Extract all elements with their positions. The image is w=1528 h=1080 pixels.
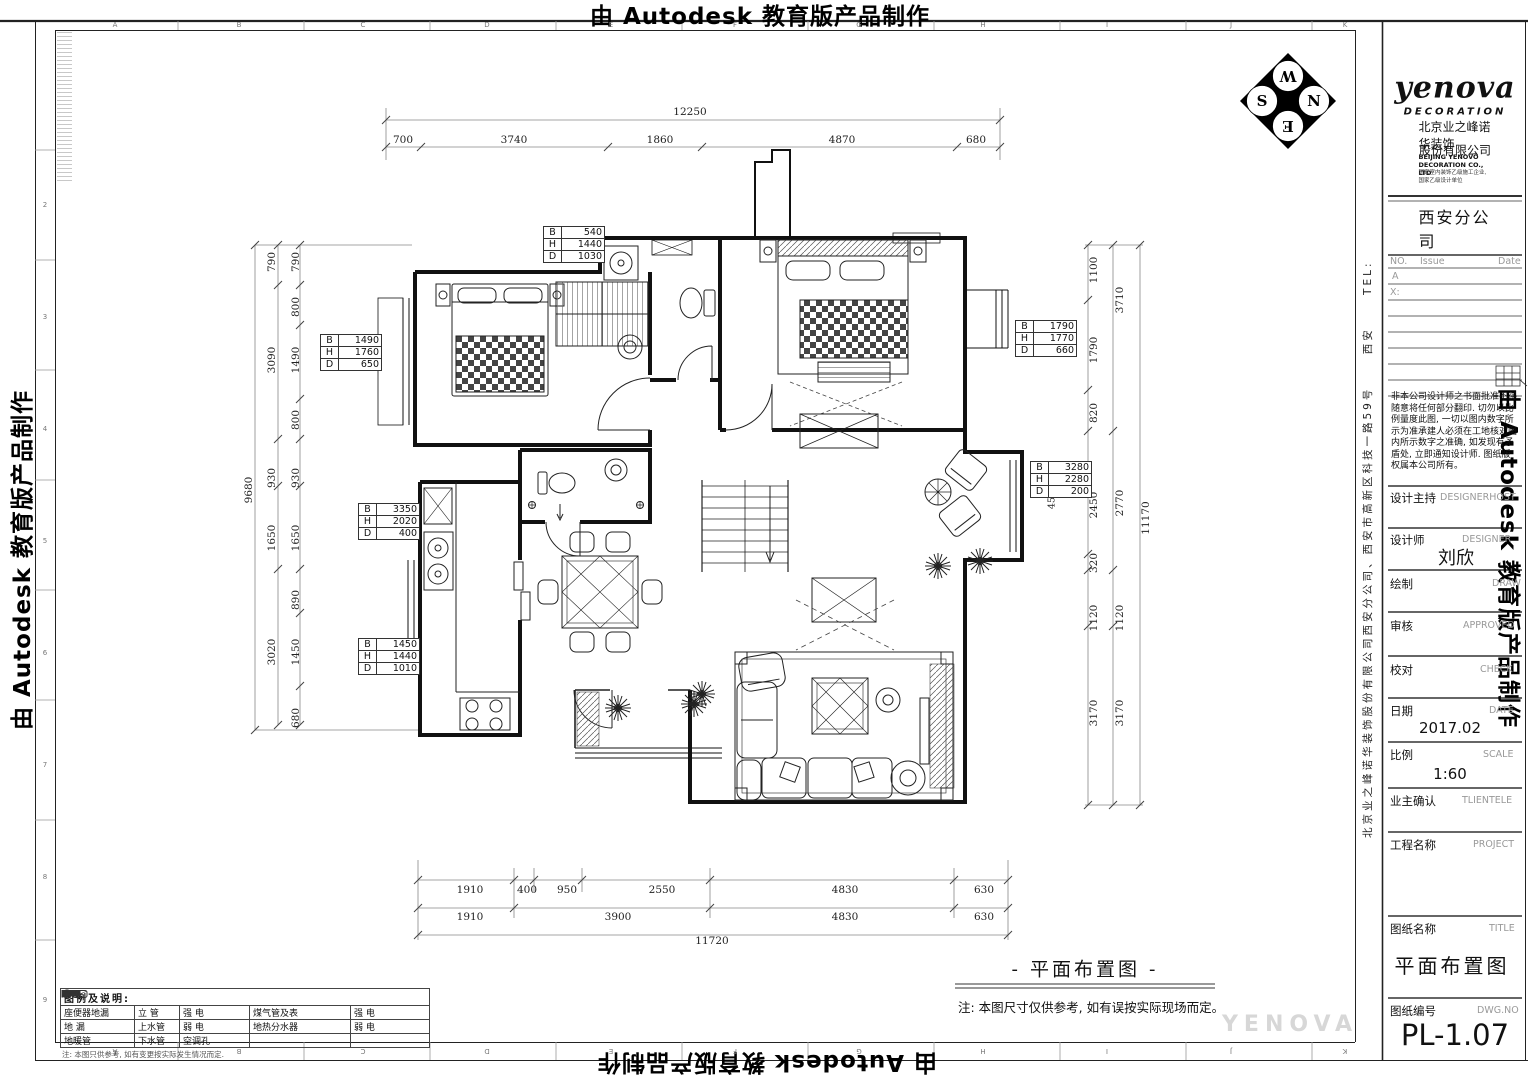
grid-ref: 7	[43, 761, 47, 769]
master-bed	[760, 240, 926, 382]
dim-label: 1120	[1114, 605, 1126, 632]
grid-ref: A	[113, 21, 118, 29]
legend-cell: 立 管	[135, 1006, 180, 1020]
legend-cell: 煤气管及表	[250, 1006, 351, 1020]
field-label: 图纸编号	[1390, 1003, 1436, 1019]
legend-cell: 强 电	[351, 1006, 430, 1020]
hall-ceiling-dashed	[796, 600, 894, 650]
legend-note: 注: 本图只供参考, 如有变更按实际发生情况而定.	[62, 1049, 224, 1060]
kitchen	[424, 482, 520, 730]
legend-cell: 座便器地漏	[61, 1006, 135, 1020]
dim-label: 3090	[266, 347, 278, 374]
legend-cell: 空调孔	[180, 1034, 250, 1048]
dim-left-overall: 9680	[243, 477, 255, 504]
dim-label: 4830	[832, 884, 859, 896]
edu-stamp-left: 由 Autodesk 教育版产品制作	[3, 390, 37, 730]
dim-label: 930	[290, 468, 302, 488]
grid-ref: F	[733, 21, 737, 29]
table-grid-icon	[1496, 366, 1527, 386]
dim-top-overall: 12250	[673, 106, 706, 118]
grid-ref: 3	[43, 313, 47, 321]
yenova-watermark: YENOVA	[1222, 1012, 1358, 1037]
designer-name: 刘欣	[1438, 544, 1474, 570]
field-label: 比例	[1390, 747, 1413, 763]
legend-cell: 上水管	[135, 1020, 180, 1034]
legend-title: 图例及说明:	[61, 989, 430, 1006]
dim-label: 680	[290, 708, 302, 728]
field-en: SCALE	[1483, 749, 1513, 760]
grid-ref: C	[361, 21, 366, 29]
grid-ref: C	[361, 1047, 366, 1055]
compass-west: W	[1278, 67, 1297, 85]
brand-certs: 国家室内装饰乙级施工企业, 国家乙级设计单位	[1419, 168, 1492, 184]
issue-row-x: X:	[1390, 287, 1400, 298]
field-label: 图纸名称	[1390, 921, 1436, 937]
grid-ref: E	[609, 21, 613, 29]
dim-label: 320	[1088, 553, 1100, 573]
issue-label: Issue	[1420, 256, 1445, 267]
grid-ref: D	[484, 21, 489, 29]
legend-cell: 地 漏	[61, 1020, 135, 1034]
dim-right-overall: 11170	[1140, 501, 1152, 534]
grid-ref: I	[1106, 21, 1108, 29]
grid-ref: H	[980, 21, 985, 29]
ac-hole-icon	[61, 989, 81, 997]
grid-ref: 8	[43, 873, 47, 881]
dim-label: 790	[266, 252, 278, 272]
master-ceiling-dashed	[790, 382, 902, 426]
dim-label: 1910	[457, 884, 484, 896]
dim-label: 3710	[1114, 287, 1126, 314]
compass-north: N	[1307, 92, 1321, 110]
grid-ref: G	[856, 1047, 861, 1055]
dim-bottom-overall: 11720	[695, 935, 728, 947]
dim-label: 680	[966, 134, 986, 146]
grid-ref: 5	[43, 537, 47, 545]
dim-label: 630	[974, 884, 994, 896]
issue-no: NO.	[1390, 256, 1407, 267]
legend-cell: 地热分水器	[250, 1020, 351, 1034]
brand-logo: yenova	[1394, 71, 1515, 106]
dim-label: 790	[290, 252, 302, 272]
dim-label: 820	[1088, 403, 1100, 423]
dim-label: 400	[517, 884, 537, 896]
plan-note: 注: 本图尺寸仅供参考, 如有误按实际现场而定。	[958, 997, 1224, 1016]
brand-logo-sub: DECORATION	[1404, 107, 1507, 118]
dim-label: 1650	[290, 525, 302, 552]
furniture-size-table: B3350 H2020 D400	[358, 503, 420, 540]
stairs	[702, 480, 788, 572]
field-label: 设计师	[1390, 532, 1425, 548]
scale-value: 1:60	[1433, 765, 1467, 783]
field-en: TLIENTELE	[1462, 795, 1512, 806]
dining-table	[538, 532, 662, 652]
grid-ref: F	[733, 1047, 737, 1055]
field-en: CHECK	[1480, 664, 1513, 675]
field-label: 校对	[1390, 662, 1413, 678]
legend-cell-empty	[351, 1034, 430, 1048]
legend-cell: 强 电	[180, 1006, 250, 1020]
floorplan-linework: W S N E	[0, 0, 1528, 1080]
hall-closet	[812, 578, 876, 622]
compass-south: S	[1257, 92, 1268, 110]
grid-ref: I	[1106, 1047, 1108, 1055]
family-corner	[925, 448, 993, 579]
dim-label: 890	[290, 590, 302, 610]
dim-label: 950	[557, 884, 577, 896]
legend-cell: 地暖管	[61, 1034, 135, 1048]
dim-label: 3170	[1114, 700, 1126, 727]
dim-label: 3170	[1088, 700, 1100, 727]
field-en: TITLE	[1489, 923, 1515, 934]
dim-label: 4830	[832, 911, 859, 923]
drawing-number: PL-1.07	[1401, 1018, 1509, 1052]
dim-label: 1450	[290, 639, 302, 666]
dim-label: 1790	[1088, 337, 1100, 364]
dim-label: 1650	[266, 525, 278, 552]
dim-label: 4870	[829, 134, 856, 146]
dim-label: 1860	[647, 134, 674, 146]
dim-label: 3020	[266, 639, 278, 666]
field-label: 绘制	[1390, 576, 1413, 592]
legend-cell: 下水管	[135, 1034, 180, 1048]
grid-ref: 9	[43, 996, 47, 1004]
grid-ref: J	[1230, 1047, 1232, 1055]
dim-label: 630	[974, 911, 994, 923]
bedroom-bed	[436, 284, 564, 396]
grid-ref: H	[980, 1047, 985, 1055]
company-address-vertical: 北京业之峰诺华装饰股份有限公司西安分公司、西安市高新区科技一路59号 西安 TE…	[1360, 261, 1375, 838]
edu-stamp-bottom: 由 Autodesk 教育版产品制作	[592, 1048, 942, 1080]
furniture-size-table: B1450 H1440 D1010	[358, 638, 420, 675]
dim-label: 800	[290, 410, 302, 430]
issue-date: Date	[1498, 256, 1521, 267]
north-compass-icon: W S N E	[1240, 53, 1336, 149]
dim-label: 700	[393, 134, 413, 146]
date-value: 2017.02	[1419, 719, 1481, 737]
dim-label: 3740	[501, 134, 528, 146]
grid-ref: 2	[43, 201, 47, 209]
field-en: DRAW	[1492, 578, 1521, 589]
drawing-title: 平面布置图	[1395, 950, 1510, 979]
dim-label: 1120	[1088, 605, 1100, 632]
furniture-size-table: B540 H1440 D1030	[543, 226, 605, 263]
grid-ref: D	[484, 1047, 489, 1055]
grid-ref: K	[1343, 21, 1348, 29]
field-label: 日期	[1390, 703, 1413, 719]
dim-label: 930	[266, 468, 278, 488]
dim-label: 1490	[290, 347, 302, 374]
grid-ref: G	[856, 21, 861, 29]
compass-east: E	[1282, 117, 1293, 135]
grid-ref: B	[237, 21, 242, 29]
plan-title: - 平面布置图 -	[1012, 955, 1159, 982]
disclaimer: 非本公司设计师之书面批准不得随意将任何部分翻印. 切勿以比例量度此图, 一切以图…	[1391, 392, 1517, 473]
field-en: PROJECT	[1473, 839, 1514, 850]
dim-label: 2550	[649, 884, 676, 896]
furniture-size-table: B3280 H2280 D200	[1030, 461, 1092, 498]
balcony	[575, 690, 707, 748]
issue-row-a: A	[1392, 271, 1399, 282]
frame-revision-strip	[57, 32, 72, 182]
grid-ref: E	[609, 1047, 613, 1055]
drawing-sheet: W S N E	[0, 0, 1528, 1080]
field-label: 工程名称	[1390, 837, 1436, 853]
dim-label: 1910	[457, 911, 484, 923]
living-room	[689, 651, 954, 800]
branch-name: 西安分公司	[1419, 204, 1492, 252]
furniture-size-table: B1790 H1770 D660	[1015, 320, 1077, 357]
legend-cell: 弱 电	[351, 1020, 430, 1034]
dim-label: 3900	[605, 911, 632, 923]
field-label: 设计主持	[1390, 490, 1436, 506]
legend-cell-empty	[250, 1034, 351, 1048]
grid-ref: K	[1343, 1047, 1348, 1055]
field-label: 业主确认	[1390, 793, 1436, 809]
dim-label: 800	[290, 297, 302, 317]
field-en: DESIGNERHOST	[1440, 492, 1516, 503]
dim-label: 2770	[1114, 490, 1126, 517]
legend-table: 图例及说明: 座便器地漏 立 管 强 电 煤气管及表 强 电 地 漏 上水管 弱…	[60, 988, 430, 1048]
legend-cell: 弱 电	[180, 1020, 250, 1034]
grid-ref: 6	[43, 649, 47, 657]
grid-ref: 4	[43, 425, 47, 433]
field-label: 审核	[1390, 618, 1413, 634]
grid-ref: B	[237, 1047, 242, 1055]
plan-title-underline	[955, 984, 1215, 988]
field-en: DATE	[1489, 705, 1514, 716]
dim-label: 1100	[1088, 257, 1100, 284]
doors	[514, 346, 772, 728]
edu-stamp-top: 由 Autodesk 教育版产品制作	[585, 0, 935, 31]
second-bathroom	[529, 459, 644, 520]
field-en: APPROVED	[1463, 620, 1515, 631]
field-en: DWG.NO	[1477, 1005, 1519, 1016]
furniture-size-table: B1490 H1760 D650	[320, 334, 382, 371]
bedroom-wardrobe	[556, 282, 648, 346]
grid-ref: J	[1230, 21, 1232, 29]
entry-duct	[755, 150, 790, 238]
